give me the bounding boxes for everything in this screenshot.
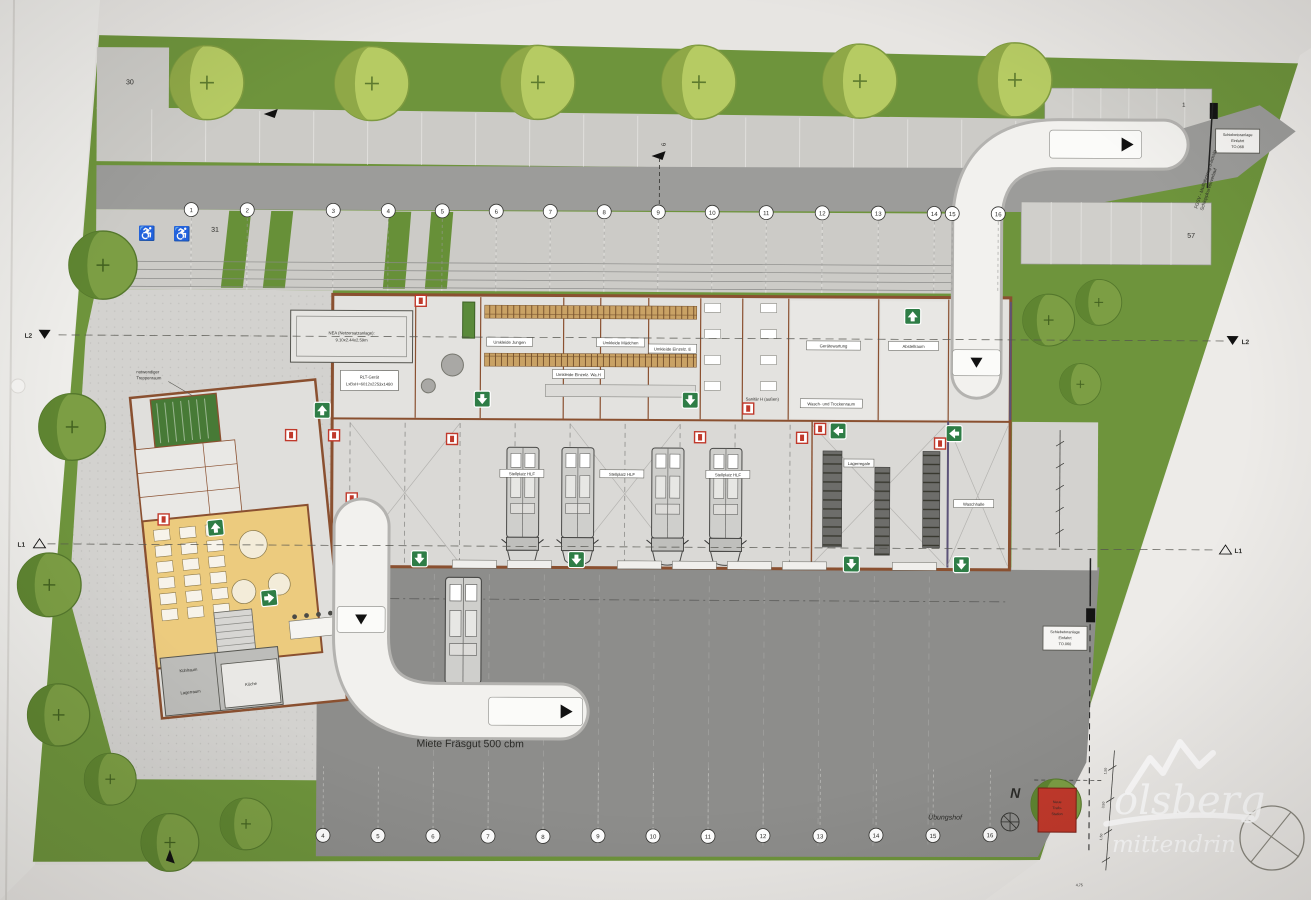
site-plan-drawing: 30 1 ♿ ♿ 31 57 Übungshof NEA (Netzersatz…: [0, 0, 1311, 900]
site-plan-photo: 30 1 ♿ ♿ 31 57 Übungshof NEA (Netzersatz…: [0, 0, 1311, 900]
photo-vignette: [0, 0, 1311, 900]
